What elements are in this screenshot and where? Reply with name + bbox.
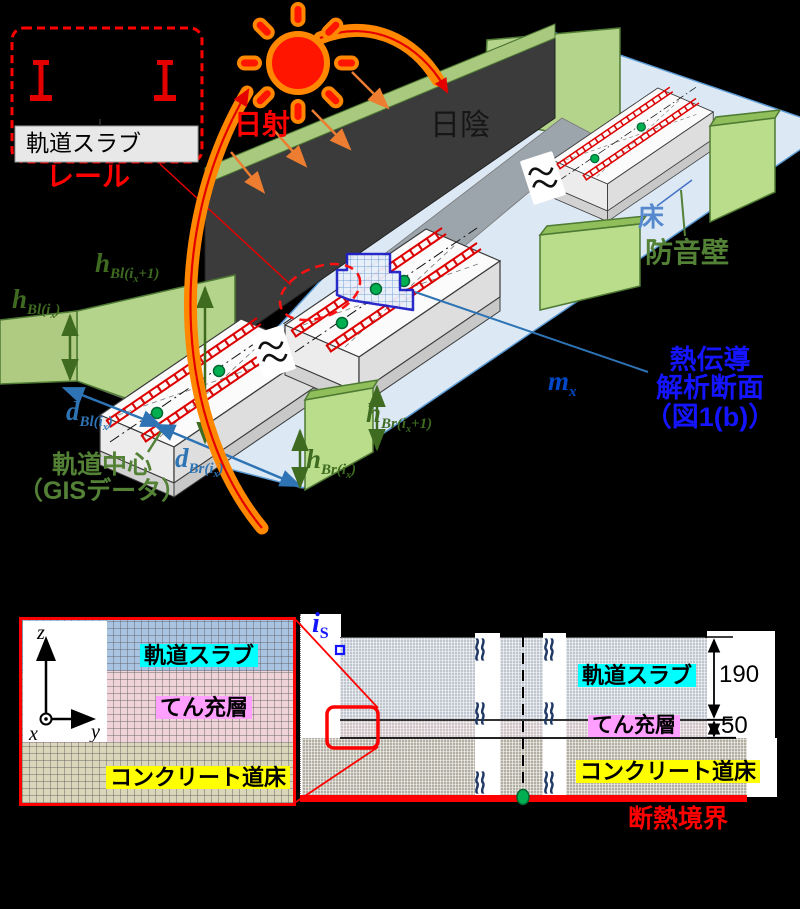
h-br-label: hBr(ix) <box>306 446 356 481</box>
callout-target-rect <box>327 707 378 748</box>
track-center-dot <box>371 284 382 295</box>
left-barrier-panel-near <box>0 311 77 384</box>
track-center-label: 軌道中心 （GISデータ） <box>52 452 186 505</box>
sun-icon <box>239 4 357 122</box>
h-bl-label: hBl(ix) <box>12 286 60 321</box>
callout-line-bottom <box>296 747 378 802</box>
h-br-next-label: hBr(ix+1) <box>366 400 432 435</box>
analysis-section-label: 熱伝導 解析断面 （図1(b)） <box>628 346 792 431</box>
m-x-label: mx <box>548 368 577 400</box>
node-marker <box>336 646 344 654</box>
rail-profile-icon <box>30 60 176 101</box>
floor-label: 床 <box>638 204 664 231</box>
h-bl-next-label: hBl(ix+1) <box>95 250 159 285</box>
box-slab-label: 軌道スラブ <box>26 131 141 155</box>
rail-label: レール <box>46 162 130 191</box>
barrier-label: 防音壁 <box>645 238 729 267</box>
scene-3d <box>0 0 800 600</box>
section-overlay <box>0 600 800 909</box>
d-br-label: dBr(ix) <box>175 445 224 480</box>
figure-canvas: 軌道スラブ レール 日射 日陰 床 防音壁 軌道中心 （GISデータ） 熱伝導 … <box>0 0 800 909</box>
sun-label: 日射 <box>234 110 290 139</box>
shade-label: 日陰 <box>430 110 490 142</box>
d-bl-label: dBl(ix) <box>66 398 113 433</box>
center-node-dot <box>517 790 529 805</box>
callout-line-top <box>296 620 378 708</box>
